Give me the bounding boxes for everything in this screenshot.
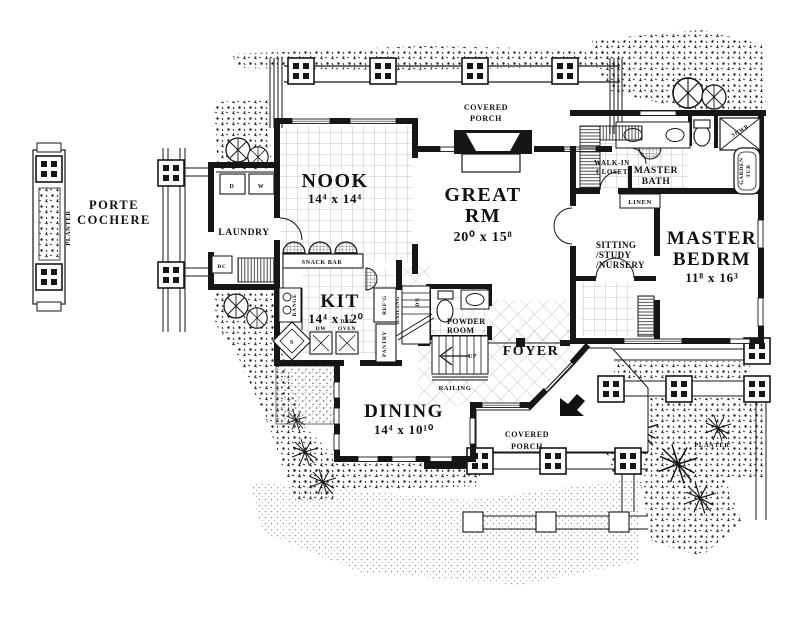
post-icon [666,376,692,402]
porte-cochere-label-2: COCHERE [77,213,151,227]
linen-closet: LINEN [620,194,660,208]
laundry-label: LAUNDRY [218,228,269,238]
pantry-label: PANTRY [382,331,388,357]
nook-label: NOOK [301,170,368,192]
shower: SHWR [720,118,760,150]
dining-label: DINING [364,401,444,422]
range-label: RANGE [292,294,298,317]
side-patio [276,366,336,424]
linen-label: LINEN [628,199,652,206]
garden-tub-label-2: TUB [746,164,752,177]
covered-porch-bottom-label-2: PORCH [511,442,543,451]
post-icon [744,376,770,402]
refrigerator-label: REF'G [382,295,388,315]
great-room-label-1: GREAT [444,184,521,206]
railing-lower-label: RAILING [439,385,472,392]
master-bedroom-dims: 11⁸ x 16³ [685,270,738,285]
post-icon [36,264,62,290]
broom-closet-label: BC [218,264,227,270]
powder-room-label-2: ROOM [447,326,474,335]
planter-left-bed [39,188,60,260]
post-icon [158,262,184,288]
laundry: D W LAUNDRY BC [212,172,276,282]
post-icon [552,58,578,84]
master-bath-label-2: BATH [642,177,671,187]
great-room-label-2: RM [465,205,501,227]
kitchen-dims: 14⁴ x 12⁰ [308,311,363,326]
covered-porch-top-label-1: COVERED [464,103,508,112]
range: RANGE [279,288,301,322]
stairs-up-label: UP [468,354,477,360]
shrubs-bottom-right [640,472,742,556]
walk-in-closet-label-2: CLOSET [596,168,628,176]
snack-bar-label: SNACK BAR [302,260,343,266]
post-icon [288,58,314,84]
post-icon [598,376,624,402]
double-oven-label-2: OVEN [338,326,356,332]
porte-cochere-label-1: PORTE [89,198,139,212]
floor-plan-drawing: PLANTER PLANTER PORTE COCHERE COVERED PO… [0,0,800,630]
pantry: PANTRY [376,324,396,362]
covered-porch-bottom-label-1: COVERED [505,430,549,439]
laundry-closet [238,258,276,282]
fireplace [454,130,532,172]
planter-right-label: PLANTER [694,442,729,449]
tree-icon [226,138,250,162]
covered-porch-top-label-2: PORCH [470,114,502,123]
powder-room-label-1: POWDER [447,317,485,326]
toilet [694,126,710,146]
garden-tub: GARDEN TUB [734,148,760,194]
post-icon [158,160,184,186]
stairs-down: RAILING DN [395,286,434,344]
post-icon [540,448,566,474]
sink-label: S [290,339,294,346]
planter-left-label: PLANTER [65,210,72,245]
sitting-label-1: SITTING [596,240,636,250]
snack-bar: SNACK BAR [283,242,363,268]
ground-texture [250,478,640,585]
tree-icon [247,308,267,328]
master-bath-label-1: MASTER [634,166,678,176]
master-bedroom-label-1: MASTER [667,228,757,249]
porte-cochere: PLANTER PORTE COCHERE [33,143,208,332]
great-room-dims: 20⁰ x 15⁸ [453,230,512,245]
railing-vertical-label: RAILING [395,296,401,324]
dryer-label: D [230,184,235,190]
post-icon [370,58,396,84]
kitchen-label: KIT [320,291,359,312]
floor-plan-sheet: PLANTER PLANTER PORTE COCHERE COVERED PO… [0,0,800,630]
refrigerator: REF'G [374,288,396,322]
washer-label: W [258,184,265,190]
stairs-dn-label: DN [415,297,421,306]
porte-cochere-colonnade [158,148,208,332]
foyer-label: FOYER [503,344,560,359]
post-icon [36,156,62,182]
sitting-label-2: /STUDY [595,250,632,260]
walk-in-closet-label-1: WALK-IN [594,159,630,167]
tree-icon [673,78,703,108]
tree-icon [224,294,248,318]
sitting-label-3: /NURSERY [595,260,645,270]
post-icon [615,448,641,474]
master-bedroom-label-2: BEDRM [673,249,751,270]
dishwasher-label: DW [316,326,327,332]
dining-dims: 14⁴ x 10¹⁰ [374,422,434,437]
post-icon [462,58,488,84]
nook-dims: 14⁴ x 14⁴ [308,191,362,206]
tree-icon [702,85,726,109]
garden-tub-label-1: GARDEN [739,157,745,184]
